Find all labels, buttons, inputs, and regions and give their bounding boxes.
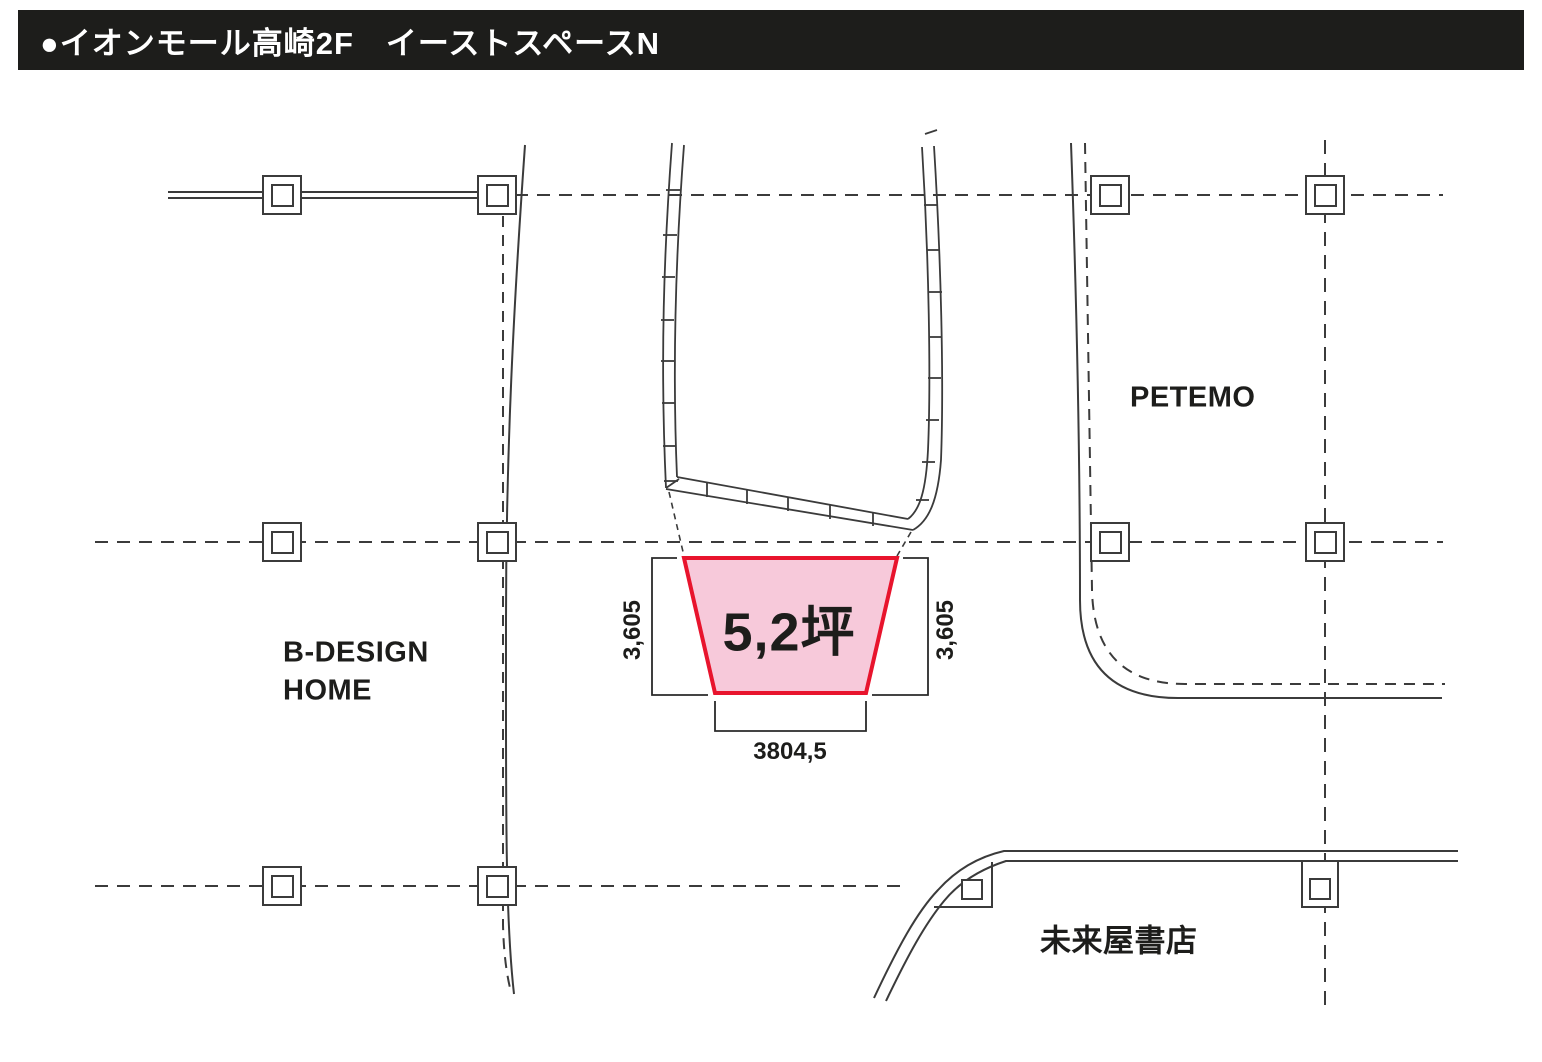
columns: [263, 176, 1344, 905]
connector-right: [897, 532, 911, 556]
dim-bracket-bottom: [715, 701, 866, 731]
storefront-glazing: [661, 130, 942, 530]
column: [263, 523, 301, 561]
column: [1306, 176, 1344, 214]
page-title: ●イオンモール高崎2F イーストスペースN: [18, 18, 660, 63]
column: [1306, 523, 1344, 561]
glazing-right-inner: [908, 147, 929, 519]
column: [478, 867, 516, 905]
glazing-bottom-upper: [677, 477, 908, 519]
glazing-bottom-lower: [666, 489, 913, 530]
bookstore-column-2: [1310, 879, 1330, 899]
wall-right-vertical-corner: [1071, 143, 1442, 698]
glazing-top-mark: [925, 130, 937, 134]
bookstore-column-1: [962, 880, 982, 899]
store-label-miraiya: 未来屋書店: [1040, 916, 1198, 961]
column: [478, 523, 516, 561]
header-bar: ●イオンモール高崎2F イーストスペースN: [18, 10, 1524, 70]
column: [1091, 176, 1129, 214]
store-label-b-design-line2: HOME: [283, 675, 372, 708]
unit-dim-left: 3,605: [619, 600, 647, 660]
column: [263, 867, 301, 905]
column: [263, 176, 301, 214]
connector-left: [669, 492, 684, 556]
floor-plan-page: ●イオンモール高崎2F イーストスペースN B-DESIGN HOME PETE…: [0, 0, 1542, 1062]
glazing-right-outer: [913, 146, 942, 530]
unit-area-label: 5,2坪: [722, 588, 855, 667]
unit-dim-right: 3,605: [932, 600, 960, 660]
floor-plan-drawing: [0, 0, 1542, 1062]
store-label-b-design-line1: B-DESIGN: [283, 637, 429, 670]
column: [1091, 523, 1129, 561]
column: [478, 176, 516, 214]
store-label-petemo: PETEMO: [1130, 382, 1255, 415]
unit-dim-bottom: 3804,5: [753, 738, 826, 766]
